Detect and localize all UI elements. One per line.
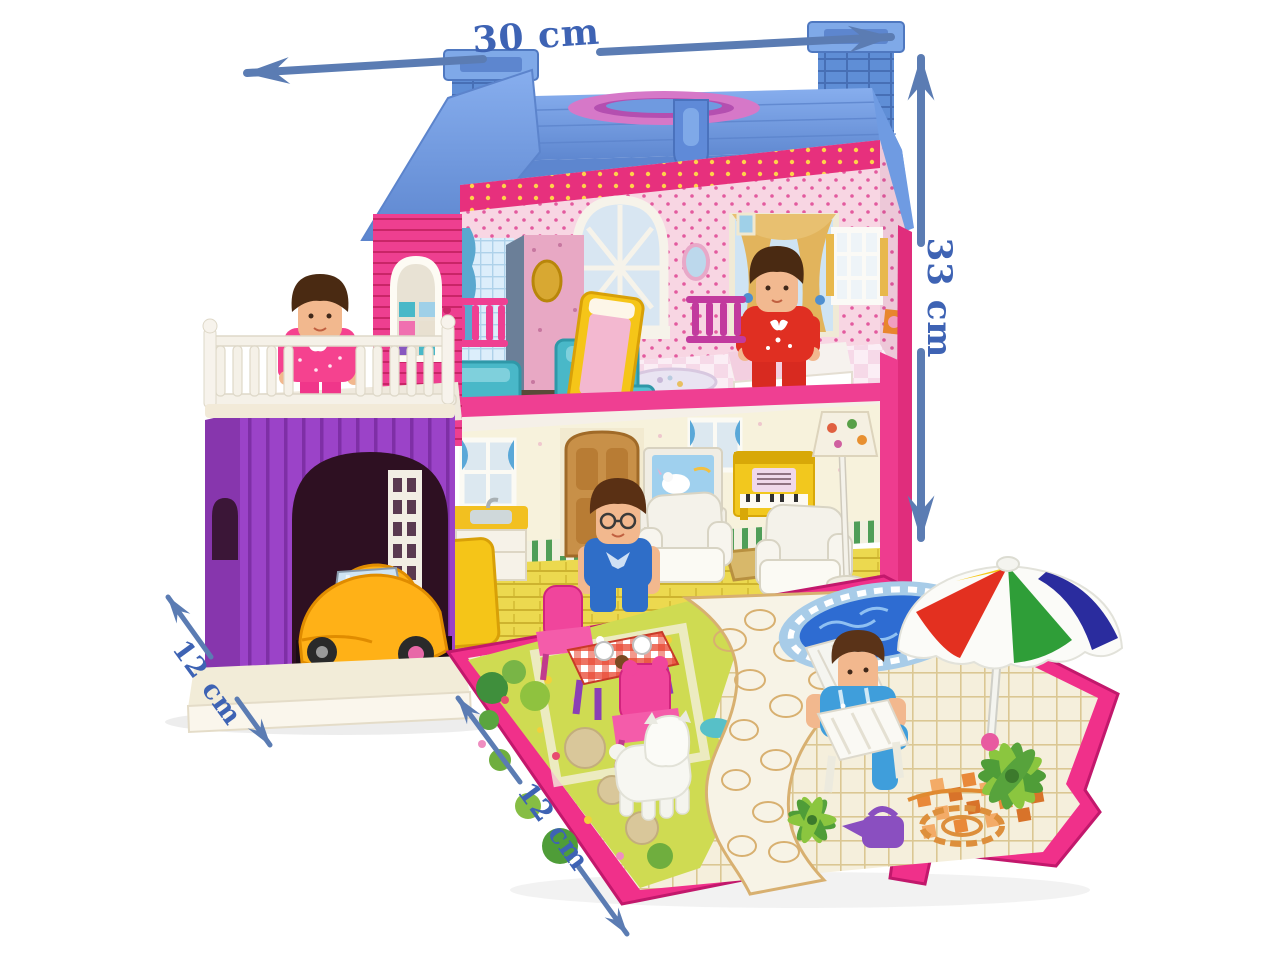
picture-frame bbox=[738, 214, 754, 234]
width-label: 30 cm bbox=[471, 11, 601, 62]
lower-window-left bbox=[462, 440, 514, 506]
product-photo-canvas: 30 cm 33 cm 12 cm 12 cm bbox=[0, 0, 1280, 960]
height-label: 33 cm bbox=[919, 238, 959, 359]
upper-floor bbox=[438, 140, 906, 434]
garage bbox=[188, 274, 471, 732]
front-wall-edge bbox=[896, 225, 912, 598]
side-window bbox=[826, 230, 888, 302]
dollhouse-scene: 30 cm 33 cm 12 cm 12 cm bbox=[0, 0, 1280, 960]
wall-mirror bbox=[684, 245, 708, 279]
